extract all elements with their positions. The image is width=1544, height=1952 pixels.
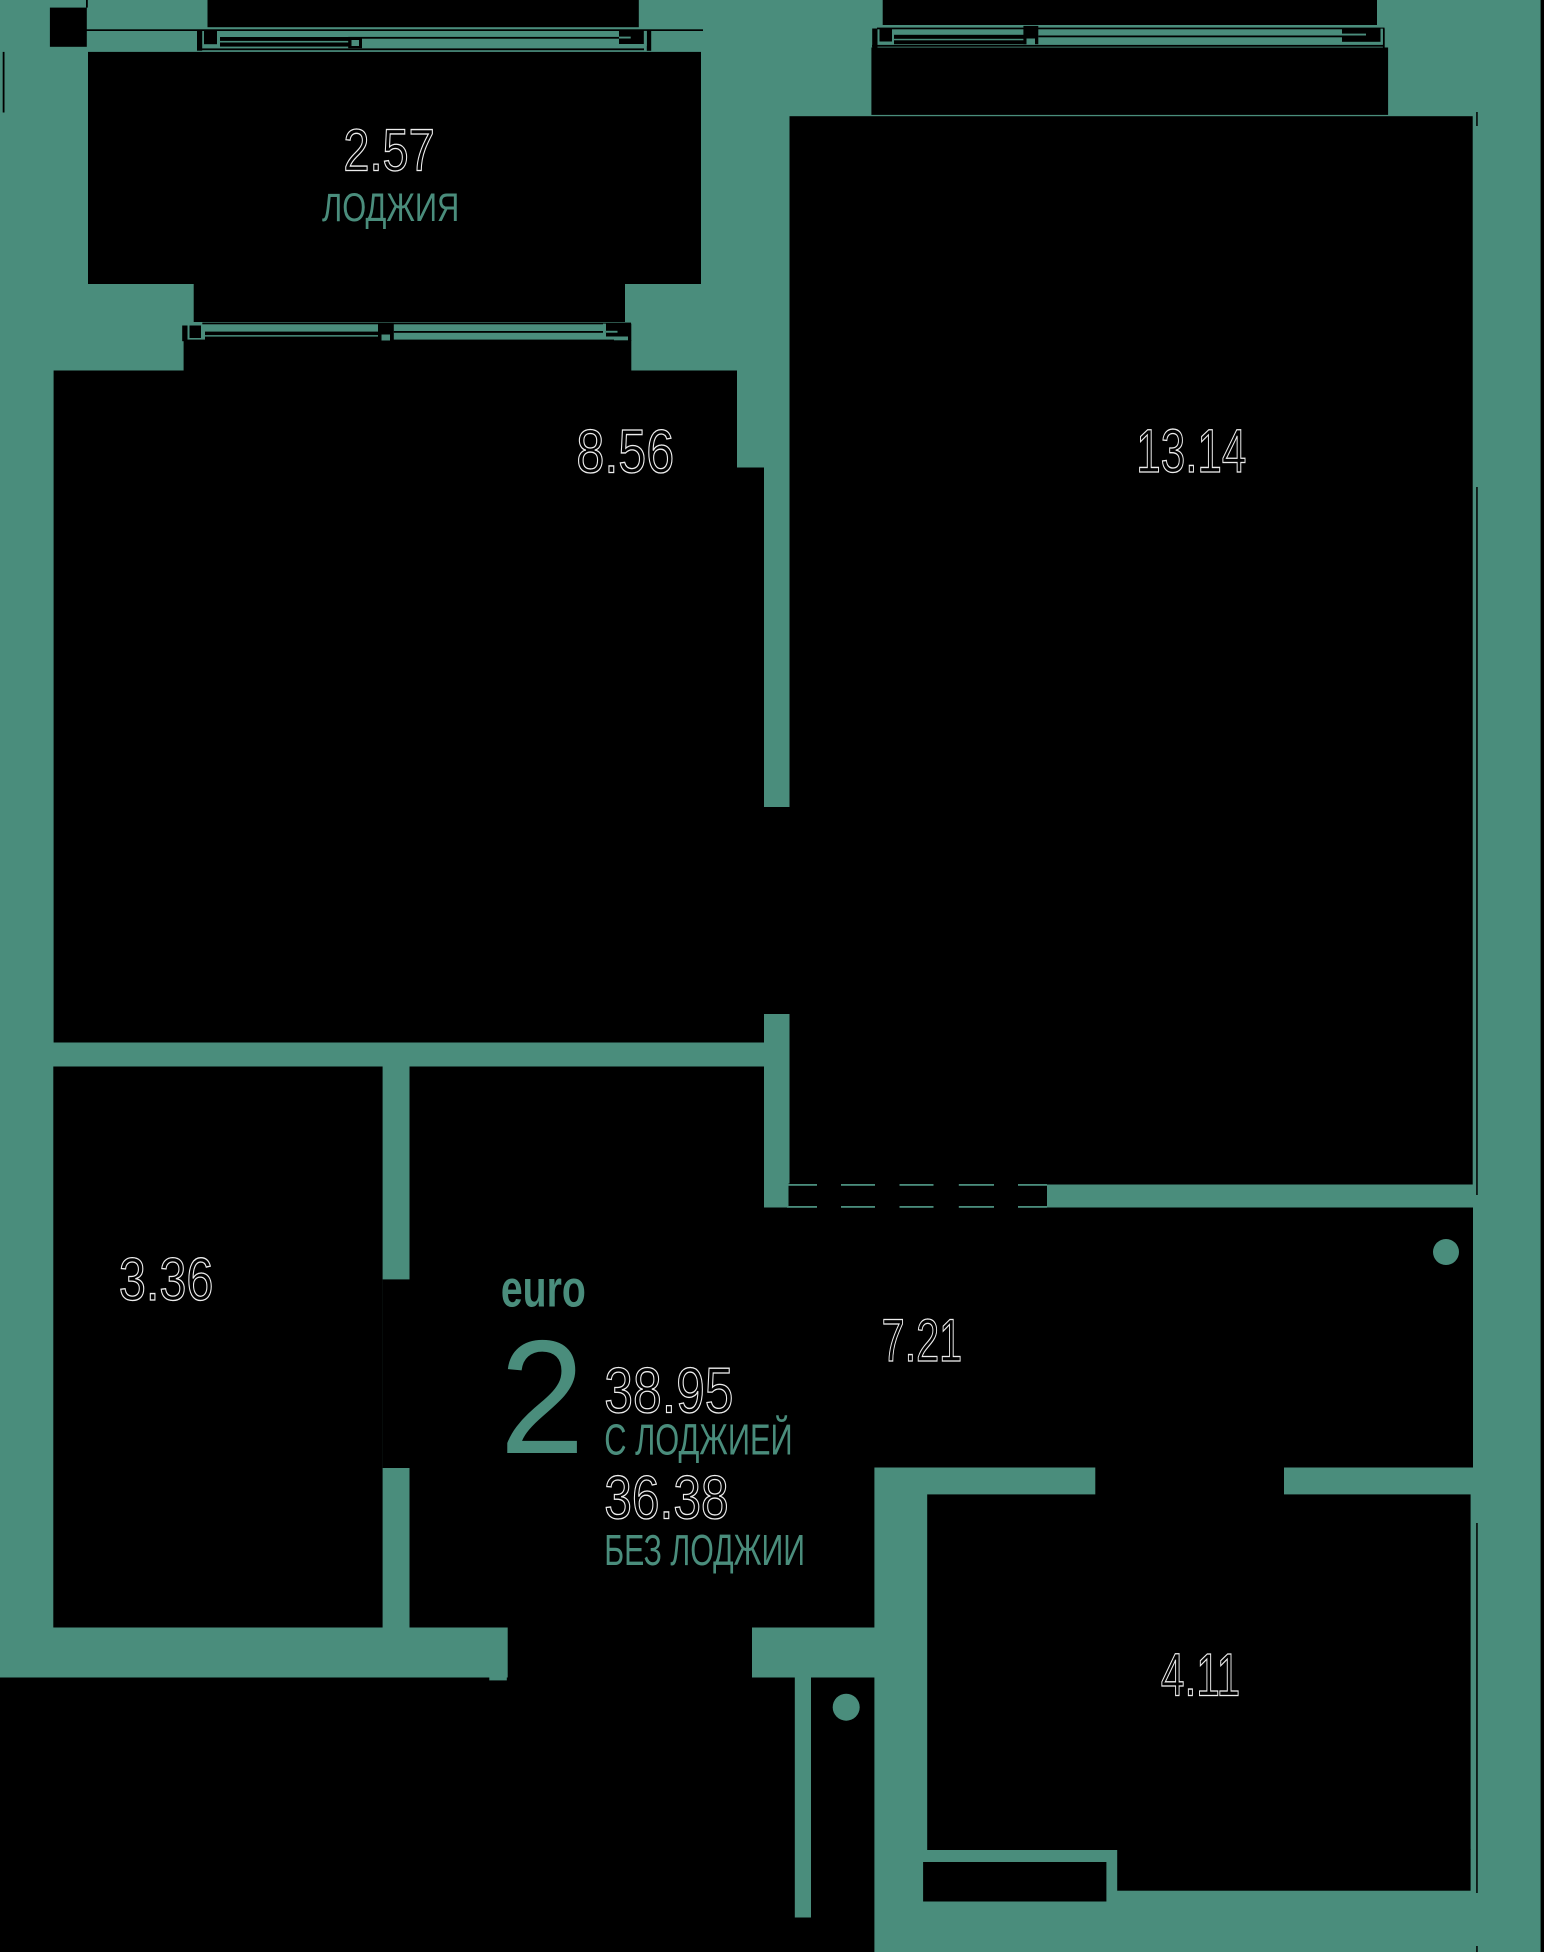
svg-text:ЛОДЖИЯ: ЛОДЖИЯ (322, 186, 459, 230)
svg-text:13.14: 13.14 (1136, 417, 1246, 485)
svg-text:3.36: 3.36 (119, 1246, 213, 1313)
svg-text:8.56: 8.56 (576, 418, 674, 486)
svg-text:С ЛОДЖИЕЙ: С ЛОДЖИЕЙ (604, 1413, 792, 1464)
svg-text:36.38: 36.38 (604, 1463, 728, 1531)
svg-text:4.11: 4.11 (1161, 1641, 1240, 1708)
svg-text:БЕЗ ЛОДЖИИ: БЕЗ ЛОДЖИИ (604, 1526, 805, 1575)
svg-text:7.21: 7.21 (882, 1307, 963, 1374)
svg-text:2.57: 2.57 (343, 117, 434, 184)
svg-text:2: 2 (500, 1307, 585, 1488)
